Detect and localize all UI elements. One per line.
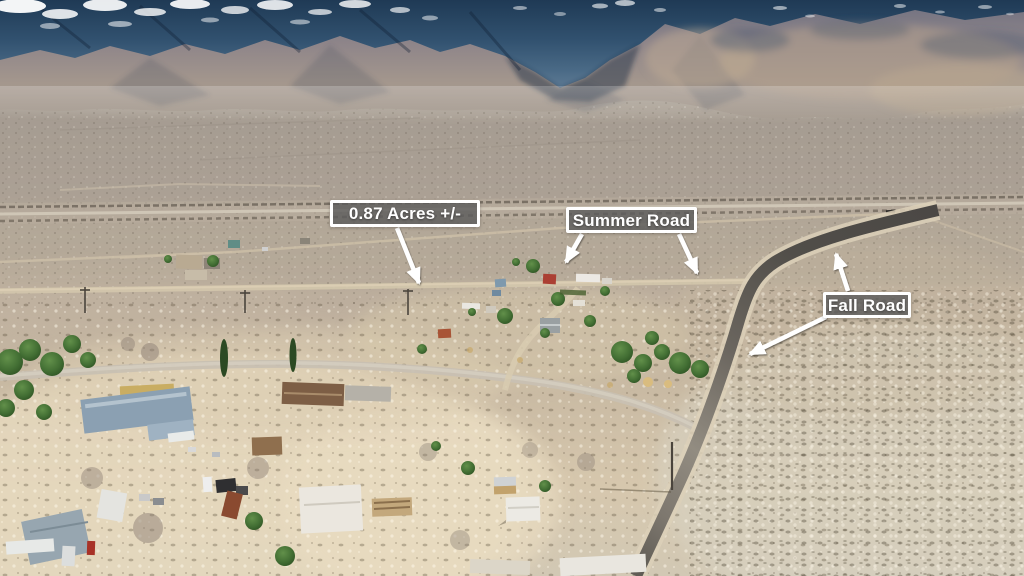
- summer-road-label: Summer Road: [573, 212, 690, 229]
- acreage-callout: 0.87 Acres +/-: [330, 200, 480, 227]
- fall-road-callout: Fall Road: [823, 292, 911, 318]
- aerial-listing-photo: 0.87 Acres +/- Summer Road Fall Road: [0, 0, 1024, 576]
- fall-road-label: Fall Road: [828, 297, 906, 314]
- mountain-range: [0, 0, 1024, 120]
- scene-svg: [0, 0, 1024, 576]
- acreage-label: 0.87 Acres +/-: [349, 205, 461, 222]
- summer-road-callout: Summer Road: [566, 207, 697, 233]
